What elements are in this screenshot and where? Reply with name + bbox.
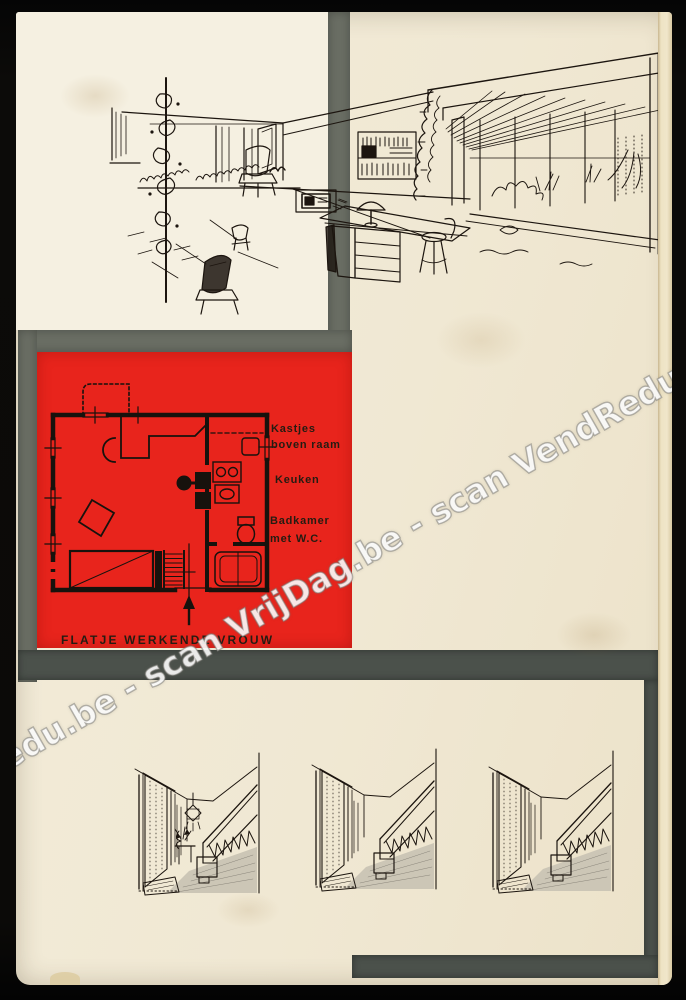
armchairs-sketch (128, 146, 278, 314)
floor-plan-caption: FLATJE WERKENDE VROUW (61, 633, 274, 647)
hallway-illustrations (16, 726, 672, 916)
hallway-sketch-2 (312, 749, 436, 891)
plan-bathroom-fixtures (215, 517, 261, 586)
label-bathroom-line2: met W.C. (270, 533, 323, 545)
desk-sketch (320, 202, 470, 282)
label-kitchen: Keuken (275, 474, 320, 486)
divider-band-middle (18, 650, 658, 680)
floor-plan-drawing: Kastjes boven raam Keuken Badkamer met W… (37, 352, 352, 648)
plan-kitchen-fixtures (213, 438, 259, 503)
bookshelf-sketch (358, 132, 416, 179)
divider-band-bottom (352, 955, 658, 978)
floor-plan-panel: Kastjes boven raam Keuken Badkamer met W… (37, 352, 352, 648)
plan-living-fixtures (70, 500, 195, 598)
label-cabinets-line1: Kastjes (271, 423, 316, 435)
hallway-sketch-3 (489, 751, 613, 893)
divider-strip-left-of-red-panel (18, 330, 37, 682)
plan-wardrobe (103, 415, 207, 462)
stone-wall-edge-sketch (414, 90, 440, 200)
large-window-sketch (428, 52, 665, 266)
entry-arrow-icon (183, 595, 195, 624)
hall-lamp-and-plant (175, 793, 201, 864)
book-back-cover: Kastjes boven raam Keuken Badkamer met W… (16, 12, 672, 985)
plan-balcony-outline (83, 384, 129, 415)
book-fore-edge (658, 12, 672, 985)
worn-corner (50, 972, 80, 985)
label-bathroom-line1: Badkamer (270, 515, 330, 527)
label-cabinets-line2: boven raam (271, 439, 341, 451)
stool-sketch (420, 219, 455, 275)
plant-pole-sketch (149, 78, 181, 302)
hallway-sketch-1 (135, 753, 259, 895)
top-interior-illustration (16, 12, 672, 340)
book-cover-photo: Kastjes boven raam Keuken Badkamer met W… (0, 0, 686, 1000)
